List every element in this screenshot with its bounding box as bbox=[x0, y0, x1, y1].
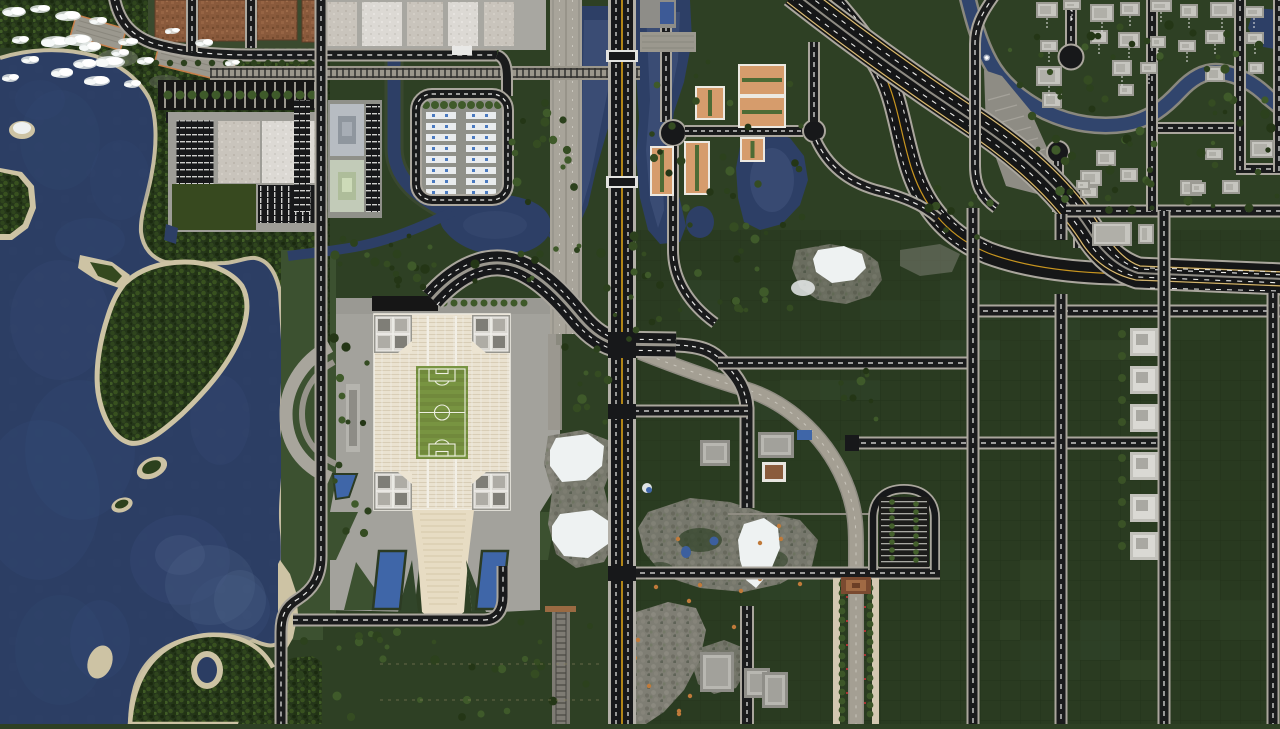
svg-text:✺: ✺ bbox=[983, 53, 991, 63]
